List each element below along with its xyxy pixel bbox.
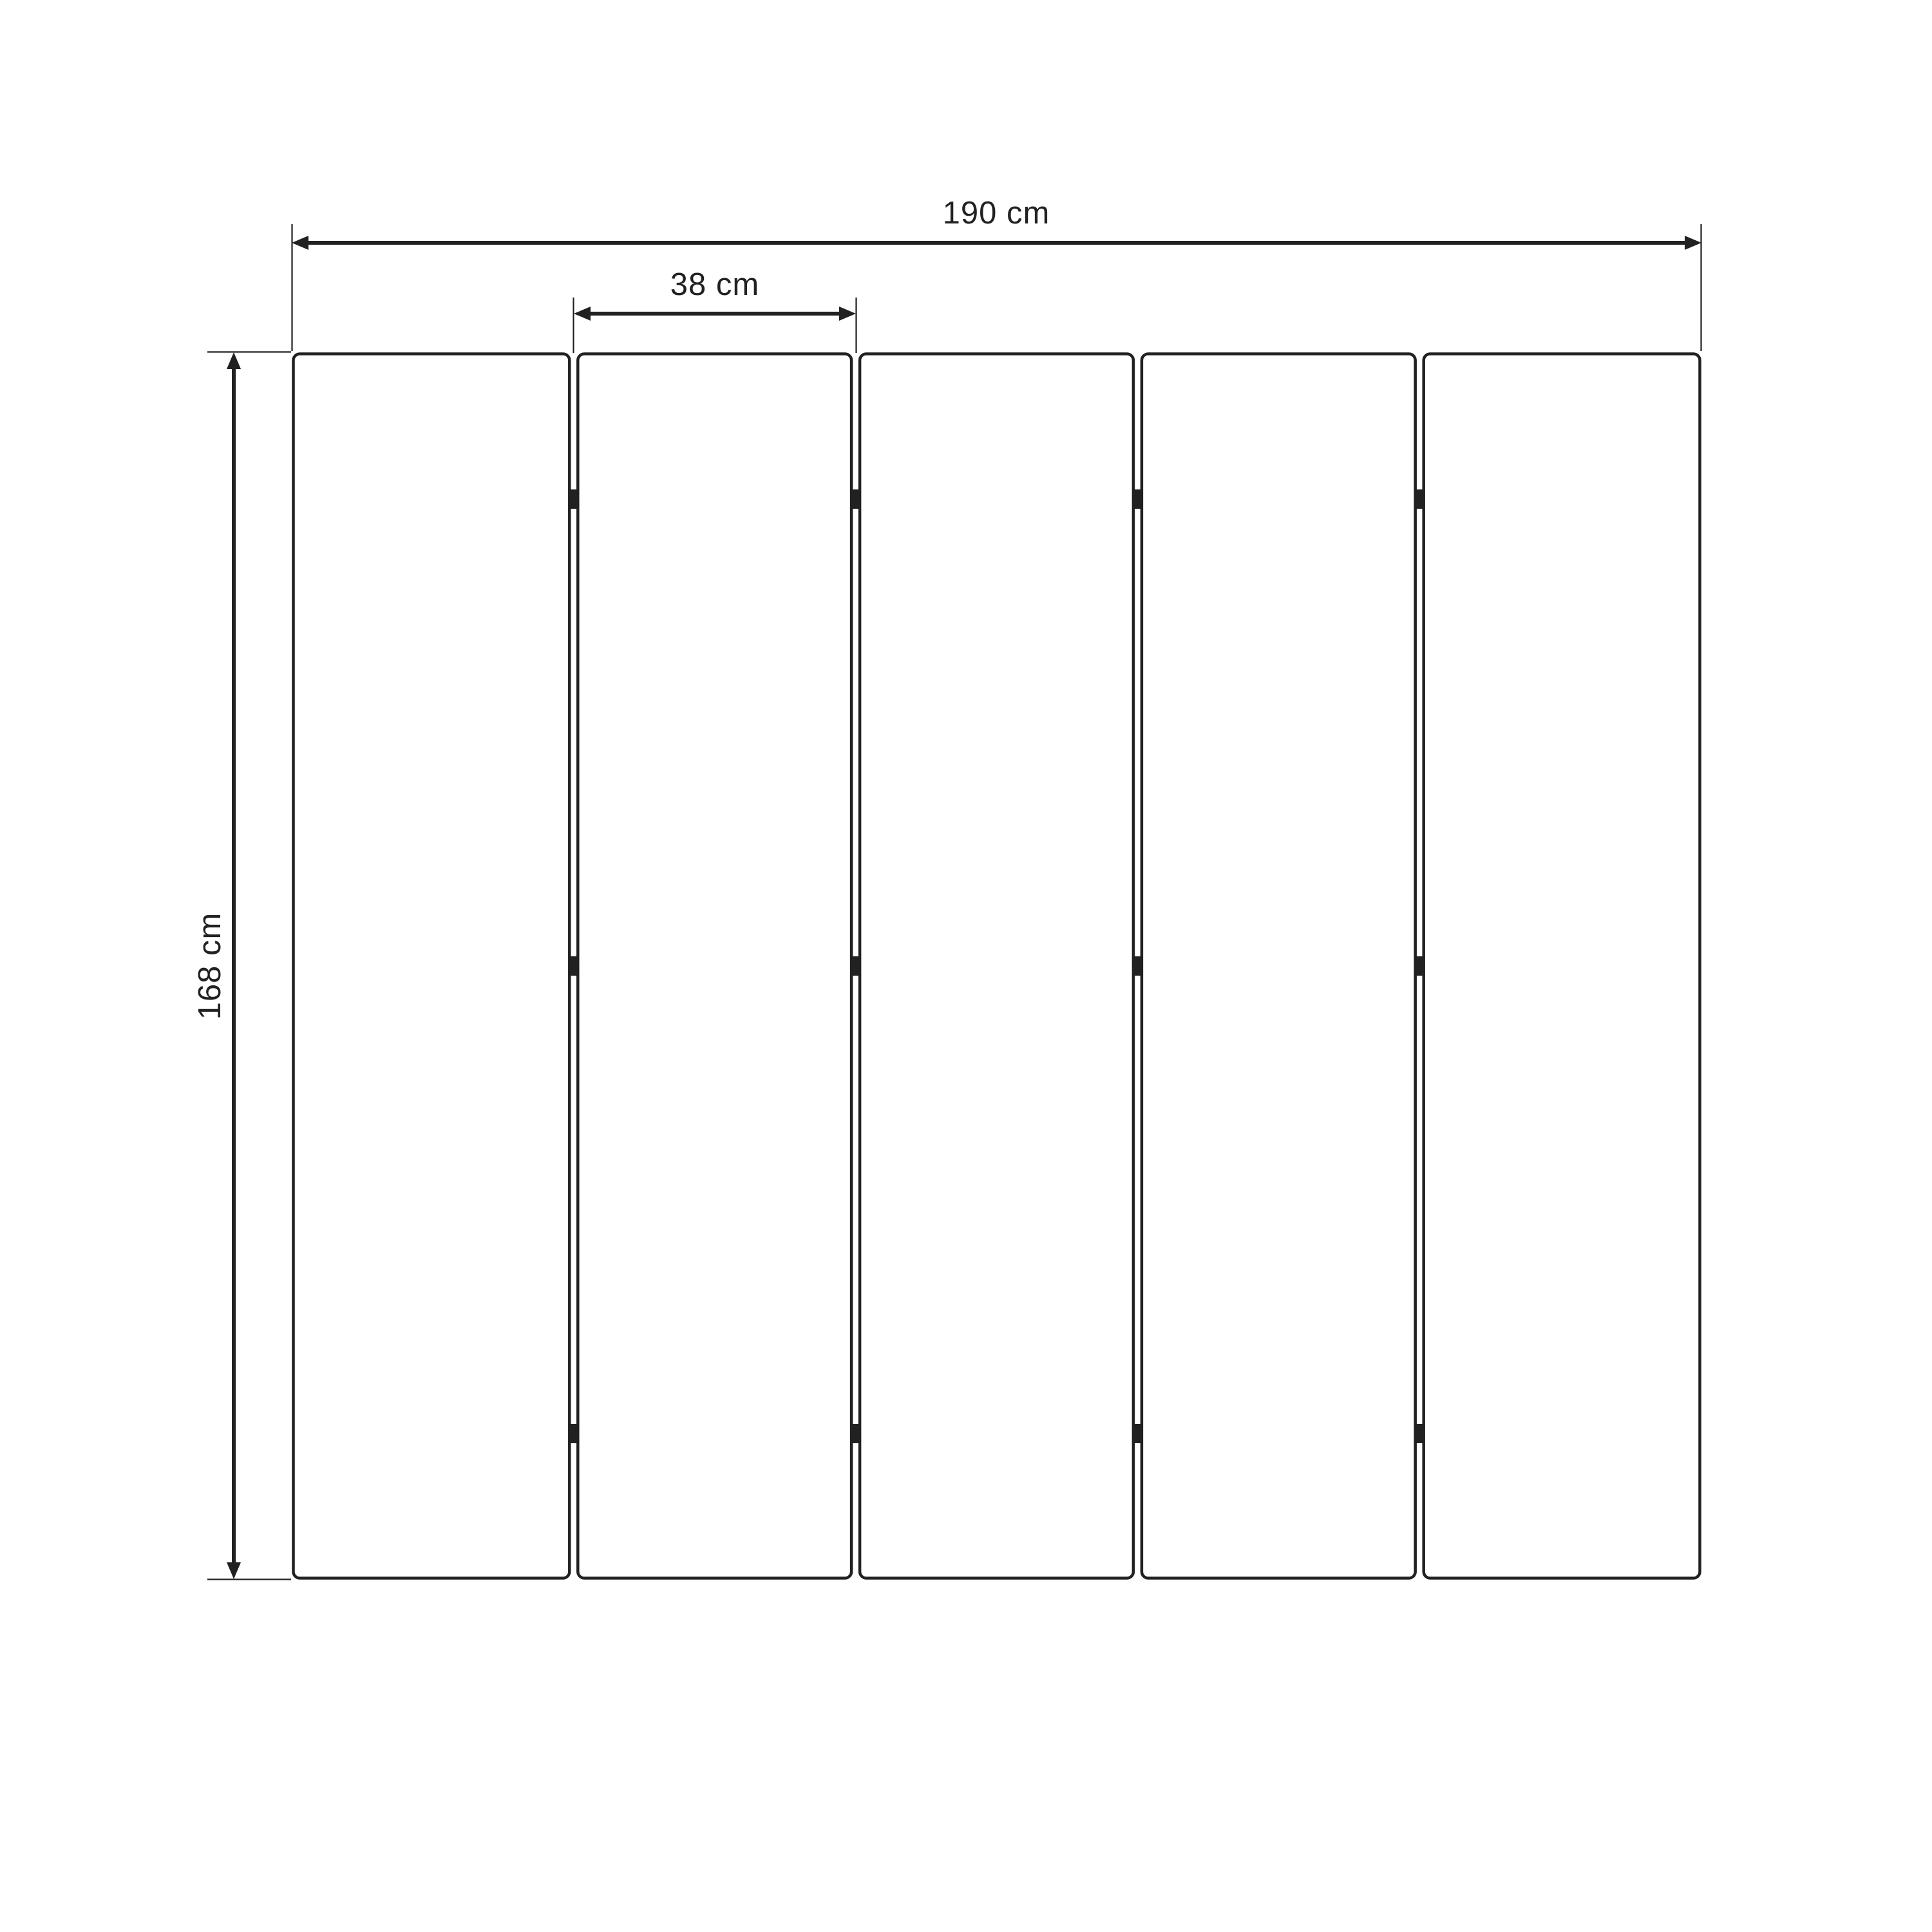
panel-5 <box>1424 354 1700 1578</box>
arrow-right-icon <box>1685 236 1701 250</box>
folding-screen-diagram: 190 cm 38 cm 168 cm <box>0 0 1932 1932</box>
arrow-left-icon <box>292 236 308 250</box>
hinge-icon <box>1133 956 1142 976</box>
hinge-icon <box>1415 1424 1424 1443</box>
arrow-down-icon <box>227 1562 241 1579</box>
dimension-total-width: 190 cm <box>292 196 1701 351</box>
drawing-canvas: 190 cm 38 cm 168 cm <box>0 0 1932 1932</box>
hinge-icon <box>569 956 578 976</box>
hinge-icon <box>1415 956 1424 976</box>
height-label: 168 cm <box>193 913 227 1020</box>
panel-1 <box>294 354 570 1578</box>
hinge-icon <box>1133 489 1142 509</box>
hinge-icon <box>851 1424 860 1443</box>
arrow-up-icon <box>227 352 241 369</box>
panel-2 <box>578 354 851 1578</box>
total-width-label: 190 cm <box>943 196 1050 231</box>
dimension-panel-width: 38 cm <box>574 267 857 353</box>
panel-width-label: 38 cm <box>670 267 759 302</box>
panel-group <box>294 354 1700 1578</box>
hinge-icon <box>851 489 860 509</box>
hinge-icon <box>569 489 578 509</box>
hinge-icon <box>1133 1424 1142 1443</box>
arrow-left-icon <box>574 307 591 321</box>
arrow-right-icon <box>839 307 856 321</box>
hinge-icon <box>851 956 860 976</box>
dimension-height: 168 cm <box>193 352 291 1580</box>
hinge-icon <box>569 1424 578 1443</box>
panel-3 <box>860 354 1133 1578</box>
hinge-icon <box>1415 489 1424 509</box>
panel-4 <box>1142 354 1416 1578</box>
